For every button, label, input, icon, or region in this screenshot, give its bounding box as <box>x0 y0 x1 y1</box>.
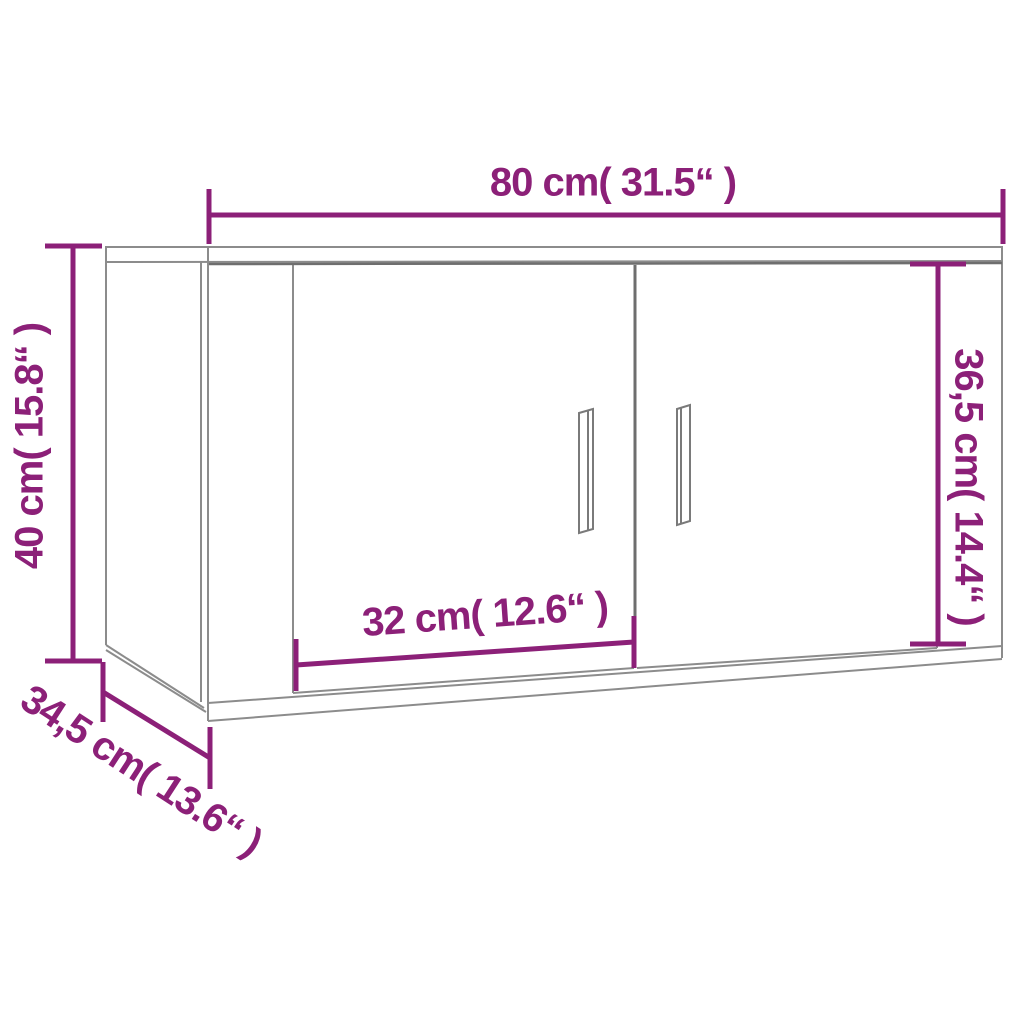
door-top-edge <box>209 263 1002 264</box>
top-band-bottom-edge <box>105 261 1003 262</box>
height-dimension-label: 40 cm( 15.8“ ) <box>8 323 53 569</box>
bottom-band-top-edge <box>208 646 1002 703</box>
product-dimension-diagram: 80 cm( 31.5“ ) 40 cm( 15.8“ ) 36,5 cm( 1… <box>0 0 1024 1024</box>
right-door-bottom-edge <box>637 648 937 668</box>
door-width-dimension-line <box>296 642 634 665</box>
side-bottom-edge <box>106 645 204 708</box>
door-height-dimension-label: 36,5 cm( 14.4“ ) <box>946 348 991 626</box>
left-door-bottom-edge <box>293 668 634 693</box>
left-door-handle <box>579 409 593 533</box>
height-dimension <box>45 246 102 661</box>
right-door-handle <box>677 405 690 525</box>
cabinet-diagram <box>0 0 1024 1024</box>
width-dimension-label: 80 cm( 31.5“ ) <box>490 161 736 206</box>
